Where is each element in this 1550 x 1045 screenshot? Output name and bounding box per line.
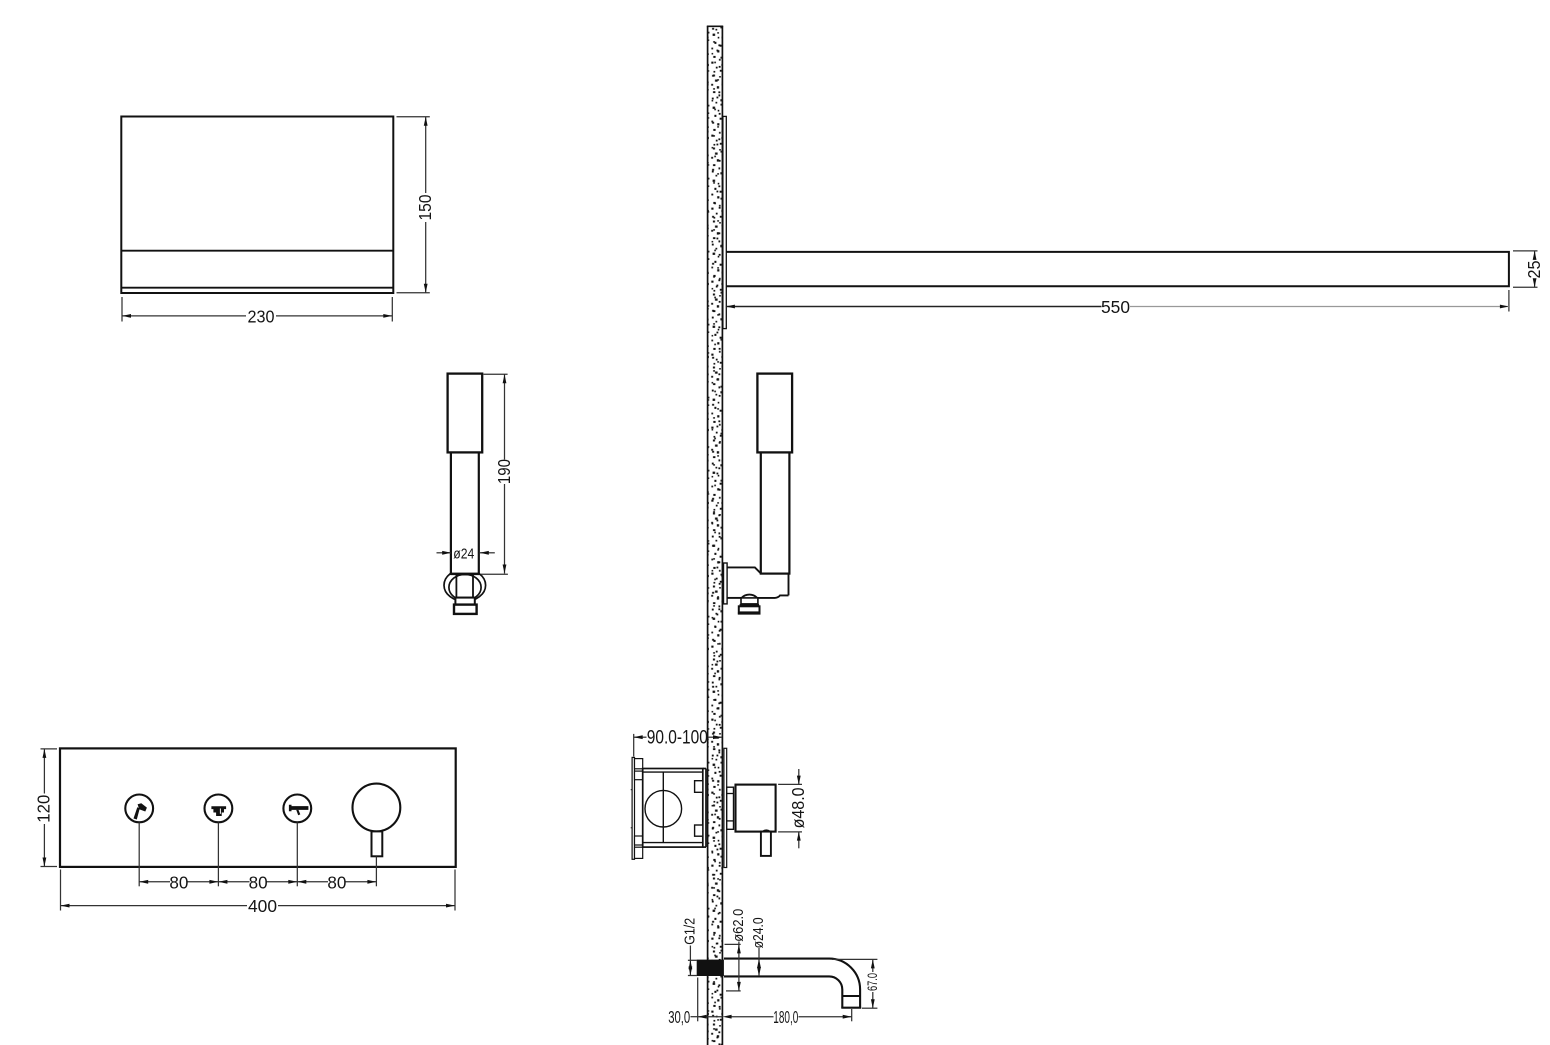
- svg-text:230: 230: [248, 307, 275, 327]
- svg-text:G1/2: G1/2: [682, 918, 699, 945]
- svg-text:ø24: ø24: [453, 545, 474, 562]
- svg-text:150: 150: [415, 194, 435, 220]
- svg-text:400: 400: [248, 896, 277, 916]
- svg-text:25: 25: [1524, 261, 1544, 279]
- svg-text:ø48.0: ø48.0: [788, 787, 808, 828]
- svg-text:30,0: 30,0: [668, 1007, 690, 1027]
- svg-text:90.0-100: 90.0-100: [647, 728, 708, 749]
- svg-text:80: 80: [249, 873, 268, 893]
- svg-text:80: 80: [327, 873, 346, 893]
- svg-text:550: 550: [1101, 297, 1130, 317]
- svg-text:180,0: 180,0: [773, 1007, 798, 1027]
- svg-text:120: 120: [34, 794, 54, 822]
- svg-text:67.0: 67.0: [864, 973, 880, 991]
- svg-text:ø62.0: ø62.0: [730, 909, 747, 942]
- svg-text:ø24.0: ø24.0: [750, 917, 767, 948]
- svg-text:80: 80: [169, 873, 188, 893]
- svg-text:190: 190: [494, 459, 514, 484]
